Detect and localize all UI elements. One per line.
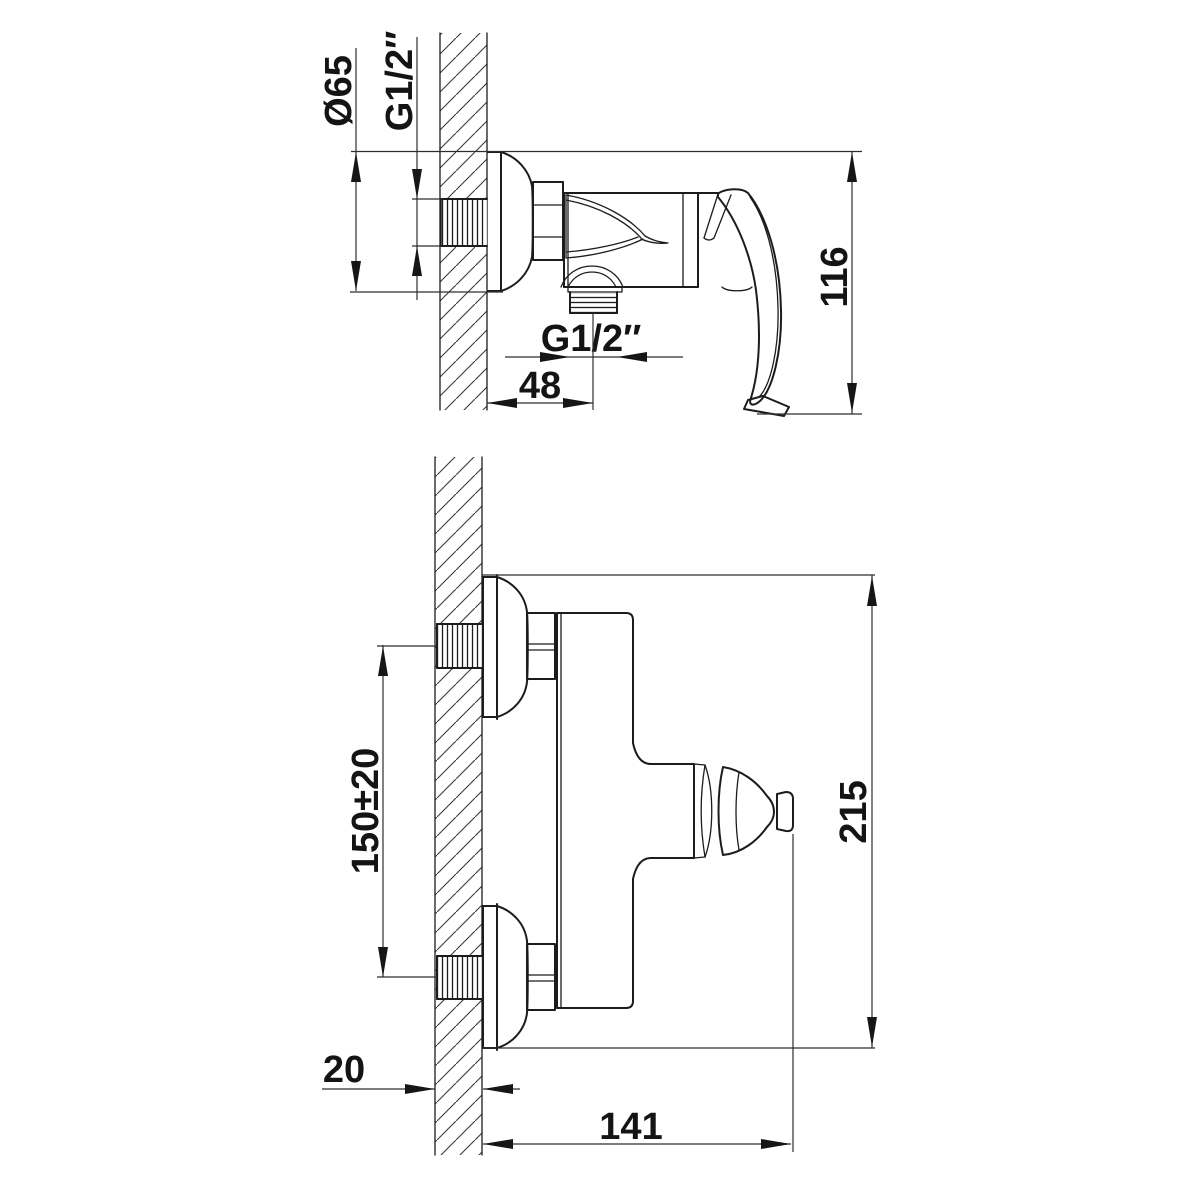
label-body-height: 116	[814, 246, 856, 307]
outlet-arch	[561, 266, 623, 287]
top-view: Ø65 G1/2″ 116 G1/2″	[318, 31, 862, 416]
dimension-inlet-spacing: 150±20	[345, 645, 437, 977]
label-inlet-thread: G1/2″	[379, 31, 421, 132]
technical-drawing-page: Ø65 G1/2″ 116 G1/2″	[0, 0, 1200, 1200]
label-escutcheon-diameter: Ø65	[318, 55, 360, 127]
hex-nut	[533, 182, 563, 260]
outlet-thread	[568, 287, 622, 313]
label-inlet-spacing: 150±20	[345, 748, 387, 875]
label-wall-thickness: 20	[323, 1049, 365, 1091]
dimension-wall-thickness: 20	[322, 1049, 520, 1094]
front-view: 150±20 215 20 141	[322, 457, 877, 1155]
dimension-reach: 141	[483, 834, 793, 1152]
upper-escutcheon	[483, 575, 528, 719]
lower-inlet-thread	[437, 956, 482, 999]
dimension-inlet-thread: G1/2″	[379, 31, 441, 300]
escutcheon	[488, 152, 533, 291]
upper-inlet-thread	[437, 624, 482, 668]
label-overall-height: 215	[833, 780, 875, 843]
inlet-nipple	[441, 199, 487, 246]
dimension-overall-height: 215	[482, 575, 877, 1048]
mixer-body	[561, 193, 698, 287]
label-reach: 141	[599, 1106, 662, 1148]
label-outlet-thread: G1/2″	[541, 318, 642, 360]
handle-front	[694, 764, 793, 858]
spout-graphic	[566, 195, 668, 258]
upper-hex-nut	[527, 613, 555, 679]
mixer-body-front	[557, 613, 694, 1008]
lower-escutcheon	[483, 904, 528, 1050]
shower-mixer-drawing: Ø65 G1/2″ 116 G1/2″	[0, 0, 1200, 1200]
lower-hex-nut	[527, 944, 555, 1010]
wall-section-front-view	[435, 457, 482, 1155]
dimension-outlet-thread: G1/2″	[505, 318, 683, 362]
label-outlet-offset: 48	[519, 365, 561, 407]
